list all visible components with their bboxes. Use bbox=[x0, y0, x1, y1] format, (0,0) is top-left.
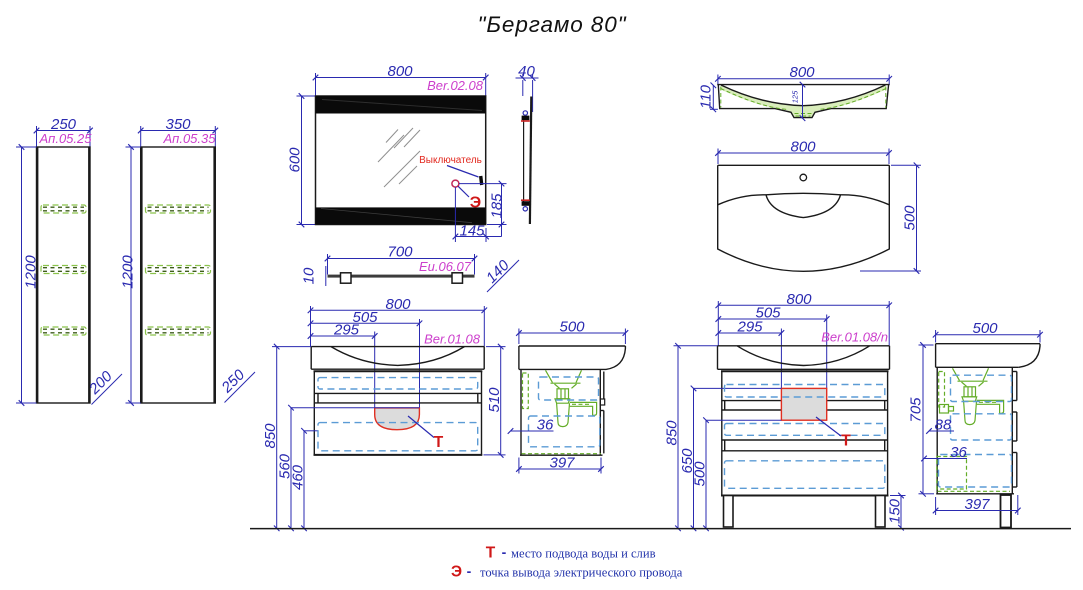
svg-text:460: 460 bbox=[290, 464, 307, 490]
svg-text:36: 36 bbox=[950, 444, 967, 461]
svg-text:150: 150 bbox=[887, 498, 904, 524]
svg-text:250: 250 bbox=[218, 366, 249, 397]
svg-text:397: 397 bbox=[549, 455, 575, 472]
svg-text:800: 800 bbox=[790, 139, 816, 156]
svg-text:"Бергамо 80": "Бергамо 80" bbox=[477, 12, 626, 37]
svg-text:Ber.01.08: Ber.01.08 bbox=[424, 332, 481, 347]
svg-text:Т: Т bbox=[486, 545, 496, 562]
svg-text:500: 500 bbox=[559, 319, 585, 336]
svg-text:705: 705 bbox=[908, 397, 925, 423]
svg-text:295: 295 bbox=[333, 322, 360, 339]
svg-text:Ber.01.08/n: Ber.01.08/n bbox=[821, 330, 888, 345]
svg-text:125: 125 bbox=[791, 90, 800, 103]
svg-text:800: 800 bbox=[789, 64, 815, 81]
svg-text:397: 397 bbox=[964, 496, 990, 513]
svg-text:800: 800 bbox=[786, 291, 812, 308]
svg-text:850: 850 bbox=[262, 423, 279, 449]
svg-text:Eu.06.07: Eu.06.07 bbox=[419, 259, 472, 274]
svg-text:510: 510 bbox=[486, 387, 503, 413]
svg-text:40: 40 bbox=[518, 63, 535, 80]
svg-text:145: 145 bbox=[459, 223, 485, 240]
svg-text:700: 700 bbox=[387, 244, 413, 261]
svg-text:1200: 1200 bbox=[23, 255, 40, 289]
svg-text:36: 36 bbox=[537, 417, 554, 434]
svg-text:800: 800 bbox=[387, 63, 413, 80]
svg-text:Э: Э bbox=[470, 195, 481, 212]
svg-text:Ап.05.35: Ап.05.35 bbox=[163, 131, 217, 146]
svg-text:800: 800 bbox=[385, 296, 411, 313]
svg-text:295: 295 bbox=[736, 319, 763, 336]
svg-text:Т: Т bbox=[434, 434, 444, 451]
svg-text:600: 600 bbox=[287, 147, 304, 173]
svg-text:Э: Э bbox=[451, 564, 462, 581]
svg-text:Ber.02.08: Ber.02.08 bbox=[427, 78, 484, 93]
svg-text:Т: Т bbox=[841, 433, 851, 450]
svg-text:110: 110 bbox=[698, 84, 715, 109]
svg-text:140: 140 bbox=[483, 256, 513, 286]
svg-text:место подвода воды и слив: место подвода воды и слив bbox=[511, 547, 656, 561]
svg-text:500: 500 bbox=[902, 205, 919, 231]
svg-text:Ап.05.25: Ап.05.25 bbox=[39, 131, 93, 146]
svg-text:точка вывода электрического пр: точка вывода электрического провода bbox=[480, 566, 683, 580]
svg-text:-: - bbox=[467, 563, 472, 579]
svg-text:500: 500 bbox=[692, 461, 709, 487]
svg-text:-: - bbox=[502, 544, 507, 560]
svg-text:185: 185 bbox=[489, 193, 506, 219]
svg-text:88: 88 bbox=[935, 417, 952, 434]
svg-text:1200: 1200 bbox=[120, 255, 137, 289]
svg-text:10: 10 bbox=[301, 267, 318, 284]
svg-text:850: 850 bbox=[664, 420, 681, 446]
svg-text:Выключатель: Выключатель bbox=[419, 155, 482, 166]
svg-text:500: 500 bbox=[972, 320, 998, 337]
